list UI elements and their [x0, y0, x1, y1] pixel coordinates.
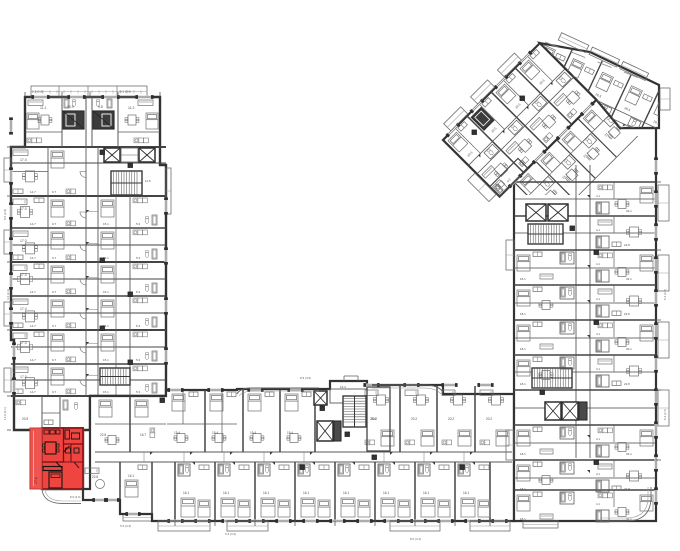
svg-text:5.3: 5.3	[136, 256, 141, 260]
svg-text:14.7: 14.7	[30, 222, 36, 226]
svg-text:15.4: 15.4	[174, 431, 180, 435]
svg-text:17.0: 17.0	[20, 239, 27, 243]
svg-text:18.1: 18.1	[520, 517, 526, 521]
svg-text:15.1: 15.1	[103, 222, 109, 226]
svg-text:22.8: 22.8	[624, 382, 630, 386]
svg-text:16.1: 16.1	[423, 491, 429, 495]
svg-text:16.4: 16.4	[340, 385, 346, 389]
svg-text:33.1: 33.1	[626, 452, 632, 456]
svg-text:17.4: 17.4	[34, 477, 38, 484]
svg-text:4.1: 4.1	[596, 228, 600, 232]
svg-text:4.1: 4.1	[596, 194, 600, 198]
svg-text:20.9: 20.9	[22, 417, 28, 421]
svg-text:18.1: 18.1	[520, 382, 526, 386]
svg-text:17.0: 17.0	[20, 207, 27, 211]
svg-text:15.1: 15.1	[103, 290, 109, 294]
svg-text:22.8: 22.8	[92, 475, 98, 479]
svg-text:9.7: 9.7	[52, 358, 57, 362]
svg-text:16.1: 16.1	[343, 491, 349, 495]
svg-text:5.3: 5.3	[136, 222, 141, 226]
svg-text:16.1: 16.1	[223, 491, 229, 495]
svg-text:14.7: 14.7	[30, 190, 36, 194]
svg-text:5.3: 5.3	[136, 358, 141, 362]
svg-text:9.7: 9.7	[52, 190, 57, 194]
svg-text:5.3: 5.3	[136, 290, 141, 294]
svg-text:5.1 (2.5): 5.1 (2.5)	[32, 90, 43, 94]
svg-text:5.4 (2.7): 5.4 (2.7)	[663, 289, 667, 300]
svg-text:9.7: 9.7	[52, 290, 57, 294]
svg-text:14.7: 14.7	[30, 290, 36, 294]
svg-text:17.0: 17.0	[20, 375, 27, 379]
svg-text:4.1: 4.1	[596, 502, 600, 506]
svg-text:16.7: 16.7	[140, 433, 146, 437]
svg-text:5.3: 5.3	[136, 390, 141, 394]
svg-text:11.5: 11.5	[145, 179, 151, 183]
svg-text:20.2: 20.2	[411, 417, 417, 421]
svg-text:5.4 (2.7): 5.4 (2.7)	[663, 409, 667, 420]
svg-text:14.7: 14.7	[30, 256, 36, 260]
svg-text:22.8: 22.8	[624, 243, 630, 247]
svg-text:33.1: 33.1	[626, 209, 632, 213]
svg-text:20.2: 20.2	[486, 417, 492, 421]
svg-text:15.1: 15.1	[103, 390, 109, 394]
svg-text:16.1: 16.1	[303, 491, 309, 495]
svg-text:4.1: 4.1	[596, 297, 600, 301]
svg-text:18.1: 18.1	[520, 452, 526, 456]
svg-text:17.0: 17.0	[20, 307, 27, 311]
svg-text:6.3 (3.3): 6.3 (3.3)	[120, 524, 131, 528]
svg-text:33.1: 33.1	[626, 347, 632, 351]
svg-text:9.8: 9.8	[98, 105, 103, 109]
svg-text:4.1: 4.1	[596, 437, 600, 441]
svg-text:8.9 (3.0): 8.9 (3.0)	[70, 495, 80, 499]
svg-text:4.1: 4.1	[596, 367, 600, 371]
svg-text:15.4: 15.4	[212, 431, 218, 435]
svg-text:33.1: 33.1	[626, 277, 632, 281]
svg-text:6.3 (3.2): 6.3 (3.2)	[225, 532, 236, 536]
svg-text:9.7: 9.7	[52, 324, 57, 328]
svg-text:17.0: 17.0	[20, 341, 27, 345]
svg-text:28.4: 28.4	[370, 417, 376, 421]
svg-text:22.8: 22.8	[624, 312, 630, 316]
svg-text:9.7: 9.7	[52, 256, 57, 260]
svg-text:16.1: 16.1	[128, 474, 134, 478]
svg-text:22.8: 22.8	[624, 487, 630, 491]
svg-text:18.1: 18.1	[520, 277, 526, 281]
svg-text:14.7: 14.7	[30, 390, 36, 394]
svg-text:33.9: 33.9	[67, 105, 74, 109]
svg-text:16.1: 16.1	[263, 491, 269, 495]
svg-text:4.4 (2.2): 4.4 (2.2)	[6, 289, 10, 300]
svg-text:11.2: 11.2	[128, 106, 134, 110]
svg-text:9.7: 9.7	[52, 222, 57, 226]
svg-text:16.1: 16.1	[183, 491, 189, 495]
svg-text:16.1: 16.1	[463, 491, 469, 495]
svg-text:4.1: 4.1	[596, 332, 600, 336]
svg-text:15.1: 15.1	[103, 358, 109, 362]
svg-text:18.1: 18.1	[520, 312, 526, 316]
svg-text:15.4: 15.4	[250, 431, 256, 435]
svg-text:14.7: 14.7	[30, 358, 36, 362]
svg-text:5.5 (2.8): 5.5 (2.8)	[3, 209, 7, 220]
svg-text:4.1: 4.1	[596, 472, 600, 476]
svg-text:11.1: 11.1	[40, 106, 46, 110]
svg-text:5.3: 5.3	[136, 324, 141, 328]
svg-text:22.8: 22.8	[100, 433, 106, 437]
svg-text:18.1: 18.1	[520, 347, 526, 351]
svg-text:4.1: 4.1	[596, 262, 600, 266]
svg-text:14.0 (4.1): 14.0 (4.1)	[3, 407, 7, 420]
svg-text:8.9 (4.5): 8.9 (4.5)	[300, 376, 311, 380]
svg-text:8.0 (3.4): 8.0 (3.4)	[410, 537, 421, 541]
svg-text:17.0: 17.0	[20, 158, 27, 162]
svg-text:18.1: 18.1	[520, 487, 526, 491]
svg-text:16.1: 16.1	[383, 491, 389, 495]
svg-text:5.1 (2.5): 5.1 (2.5)	[120, 90, 131, 94]
svg-text:14.7: 14.7	[30, 324, 36, 328]
svg-text:9.7: 9.7	[52, 390, 57, 394]
svg-text:15.4: 15.4	[287, 431, 293, 435]
svg-text:17.0: 17.0	[20, 273, 27, 277]
svg-text:20.2: 20.2	[448, 417, 454, 421]
